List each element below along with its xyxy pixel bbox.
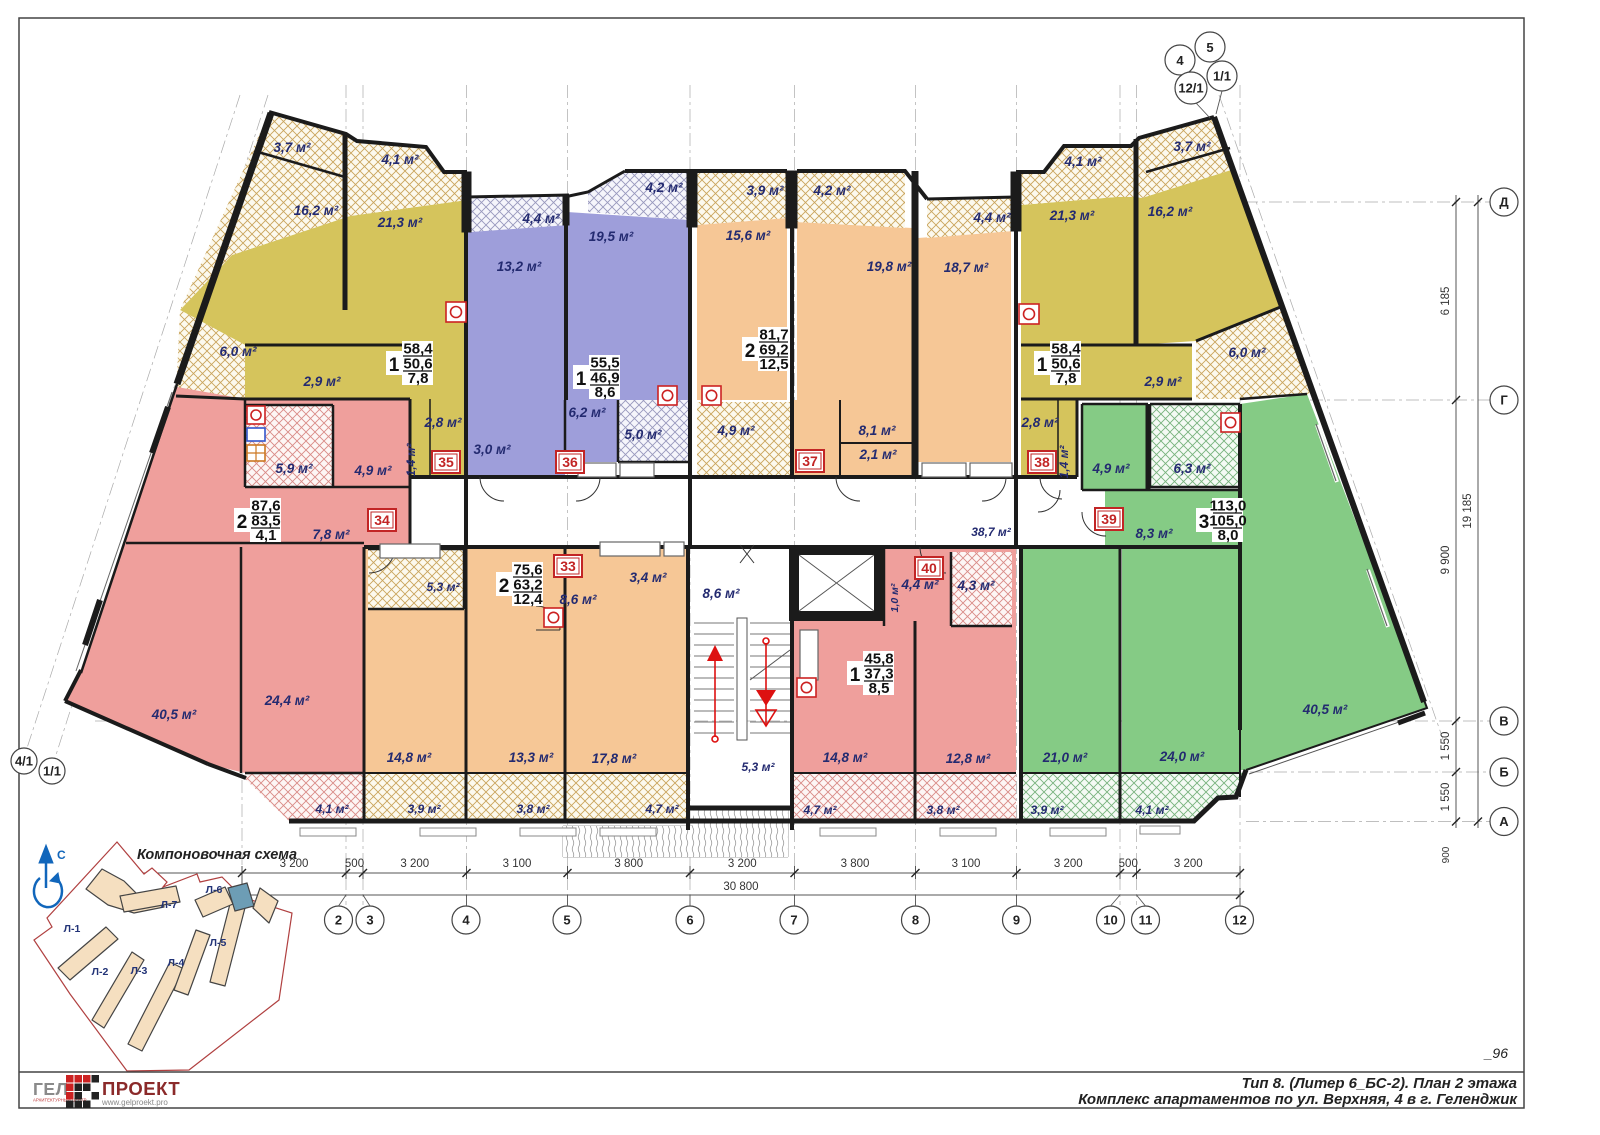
svg-text:9 900: 9 900 xyxy=(1440,546,1452,575)
svg-text:7,8: 7,8 xyxy=(408,370,429,387)
svg-text:13,3 м²: 13,3 м² xyxy=(509,750,554,765)
svg-text:17,8 м²: 17,8 м² xyxy=(592,751,637,766)
svg-text:16,2 м²: 16,2 м² xyxy=(1148,204,1193,219)
svg-text:38,7 м²: 38,7 м² xyxy=(971,525,1012,539)
svg-text:8,6: 8,6 xyxy=(595,384,616,401)
svg-text:А: А xyxy=(1499,814,1509,829)
svg-text:900: 900 xyxy=(1441,846,1452,863)
svg-text:3: 3 xyxy=(366,913,373,928)
svg-text:7,8 м²: 7,8 м² xyxy=(313,527,351,542)
svg-text:Д: Д xyxy=(1499,195,1509,210)
svg-text:2,9 м²: 2,9 м² xyxy=(303,374,342,389)
svg-text:Л-4: Л-4 xyxy=(168,957,185,969)
svg-text:6: 6 xyxy=(686,913,693,928)
svg-text:7,8: 7,8 xyxy=(1056,370,1077,387)
svg-text:2: 2 xyxy=(237,512,248,533)
svg-text:2,9 м²: 2,9 м² xyxy=(1144,374,1183,389)
svg-text:33: 33 xyxy=(560,558,576,574)
svg-text:12/1: 12/1 xyxy=(1178,81,1203,96)
svg-text:40: 40 xyxy=(921,560,937,576)
svg-text:3,7 м²: 3,7 м² xyxy=(274,140,312,155)
svg-text:30 800: 30 800 xyxy=(723,881,758,893)
svg-text:3: 3 xyxy=(1199,512,1210,533)
svg-text:3,4 м²: 3,4 м² xyxy=(630,570,668,585)
svg-text:8,0: 8,0 xyxy=(1218,527,1239,544)
svg-text:Л-3: Л-3 xyxy=(131,965,148,977)
svg-text:12: 12 xyxy=(1232,913,1246,928)
svg-text:www.gelproekt.pro: www.gelproekt.pro xyxy=(101,1098,168,1107)
svg-text:11: 11 xyxy=(1139,913,1153,928)
svg-text:С: С xyxy=(57,848,66,862)
svg-text:24,4 м²: 24,4 м² xyxy=(264,693,310,708)
svg-text:10: 10 xyxy=(1103,913,1117,928)
svg-text:Г: Г xyxy=(1500,393,1508,408)
svg-text:13,2 м²: 13,2 м² xyxy=(497,259,542,274)
svg-text:3,9 м²: 3,9 м² xyxy=(747,183,785,198)
svg-text:7: 7 xyxy=(790,913,797,928)
svg-text:37: 37 xyxy=(802,453,818,469)
svg-text:12,8 м²: 12,8 м² xyxy=(946,751,991,766)
svg-text:6,0 м²: 6,0 м² xyxy=(220,344,258,359)
svg-text:3 200: 3 200 xyxy=(400,858,429,870)
svg-text:19,8 м²: 19,8 м² xyxy=(867,259,912,274)
svg-text:Л-2: Л-2 xyxy=(92,966,109,978)
svg-text:3,9 м²: 3,9 м² xyxy=(1031,803,1065,817)
svg-text:_96: _96 xyxy=(1483,1045,1509,1061)
svg-text:21,3 м²: 21,3 м² xyxy=(377,215,423,230)
svg-text:5,0 м²: 5,0 м² xyxy=(625,427,663,442)
svg-text:21,3 м²: 21,3 м² xyxy=(1049,208,1095,223)
svg-text:1: 1 xyxy=(389,355,400,376)
svg-text:Л-7: Л-7 xyxy=(161,899,178,911)
svg-text:40,5 м²: 40,5 м² xyxy=(1302,702,1348,717)
svg-text:8: 8 xyxy=(912,913,919,928)
svg-text:4,9 м²: 4,9 м² xyxy=(354,463,393,478)
svg-text:8,1 м²: 8,1 м² xyxy=(859,423,897,438)
svg-text:8,6 м²: 8,6 м² xyxy=(703,586,741,601)
svg-text:4,7 м²: 4,7 м² xyxy=(645,802,680,816)
svg-text:1,0 м²: 1,0 м² xyxy=(889,583,901,612)
svg-text:Л-5: Л-5 xyxy=(210,937,227,949)
svg-text:1 550: 1 550 xyxy=(1440,732,1452,761)
svg-text:Л-6: Л-6 xyxy=(206,884,223,896)
svg-text:8,6 м²: 8,6 м² xyxy=(560,592,598,607)
svg-text:3 100: 3 100 xyxy=(503,858,532,870)
svg-text:3 200: 3 200 xyxy=(1174,858,1203,870)
svg-text:36: 36 xyxy=(562,454,578,470)
svg-text:5,9 м²: 5,9 м² xyxy=(276,461,314,476)
svg-text:8,3 м²: 8,3 м² xyxy=(1136,526,1174,541)
svg-text:4,1 м²: 4,1 м² xyxy=(1064,154,1103,169)
svg-text:4/1: 4/1 xyxy=(15,754,33,769)
svg-text:24,0 м²: 24,0 м² xyxy=(1159,749,1205,764)
svg-text:19,5 м²: 19,5 м² xyxy=(589,229,634,244)
svg-text:3 800: 3 800 xyxy=(841,858,870,870)
svg-text:2: 2 xyxy=(499,576,510,597)
svg-text:4,1 м²: 4,1 м² xyxy=(1135,803,1170,817)
svg-text:12,5: 12,5 xyxy=(759,356,788,373)
svg-text:35: 35 xyxy=(438,454,454,470)
svg-text:2,8 м²: 2,8 м² xyxy=(424,415,463,430)
svg-text:В: В xyxy=(1499,714,1508,729)
svg-text:16,2 м²: 16,2 м² xyxy=(294,203,339,218)
svg-text:Б: Б xyxy=(1499,765,1508,780)
svg-text:1,4 м²: 1,4 м² xyxy=(1057,445,1071,479)
svg-text:8,5: 8,5 xyxy=(869,680,890,697)
svg-text:ПРОЕКТ: ПРОЕКТ xyxy=(102,1078,180,1099)
svg-text:3,8 м²: 3,8 м² xyxy=(927,803,961,817)
svg-text:3,0 м²: 3,0 м² xyxy=(474,442,512,457)
svg-text:3,8 м²: 3,8 м² xyxy=(517,802,551,816)
svg-text:1/1: 1/1 xyxy=(43,764,61,779)
svg-text:3 100: 3 100 xyxy=(952,858,981,870)
svg-text:2,8 м²: 2,8 м² xyxy=(1021,415,1060,430)
svg-text:4,1 м²: 4,1 м² xyxy=(315,802,350,816)
svg-text:Компоновочная схема: Компоновочная схема xyxy=(137,847,297,863)
svg-text:40,5 м²: 40,5 м² xyxy=(151,707,197,722)
svg-text:4,1: 4,1 xyxy=(256,527,277,544)
svg-text:4,2 м²: 4,2 м² xyxy=(813,183,852,198)
svg-text:38: 38 xyxy=(1034,454,1050,470)
svg-text:3,7 м²: 3,7 м² xyxy=(1174,139,1212,154)
svg-text:2: 2 xyxy=(335,913,342,928)
svg-text:5: 5 xyxy=(563,913,570,928)
svg-text:4,2 м²: 4,2 м² xyxy=(645,180,684,195)
svg-text:Л-1: Л-1 xyxy=(64,923,81,935)
svg-text:Комплекс апартаментов по ул. В: Комплекс апартаментов по ул. Верхняя, 4 … xyxy=(1078,1091,1518,1108)
svg-text:1: 1 xyxy=(576,369,587,390)
svg-text:6 185: 6 185 xyxy=(1440,287,1452,316)
svg-text:4,9 м²: 4,9 м² xyxy=(717,423,756,438)
svg-text:1/1: 1/1 xyxy=(1213,69,1231,84)
svg-text:Тип 8. (Литер 6_БС-2). План 2: Тип 8. (Литер 6_БС-2). План 2 этажа xyxy=(1242,1075,1517,1092)
svg-text:21,0 м²: 21,0 м² xyxy=(1042,750,1088,765)
svg-text:18,7 м²: 18,7 м² xyxy=(944,260,989,275)
svg-text:14,8 м²: 14,8 м² xyxy=(387,750,432,765)
svg-text:5: 5 xyxy=(1206,40,1213,55)
svg-text:1,4 м²: 1,4 м² xyxy=(404,443,418,477)
svg-text:4,4 м²: 4,4 м² xyxy=(522,211,561,226)
svg-text:39: 39 xyxy=(1101,511,1117,527)
svg-text:12,4: 12,4 xyxy=(513,591,543,608)
svg-text:2,1 м²: 2,1 м² xyxy=(859,447,898,462)
svg-text:2: 2 xyxy=(745,341,756,362)
svg-text:1: 1 xyxy=(850,665,861,686)
svg-text:5,3 м²: 5,3 м² xyxy=(427,580,461,594)
svg-text:5,3 м²: 5,3 м² xyxy=(742,760,776,774)
svg-text:3 800: 3 800 xyxy=(614,858,643,870)
svg-text:4,7 м²: 4,7 м² xyxy=(803,803,838,817)
svg-text:4: 4 xyxy=(1176,53,1184,68)
svg-text:4,4 м²: 4,4 м² xyxy=(973,210,1012,225)
svg-text:1: 1 xyxy=(1037,355,1048,376)
svg-text:34: 34 xyxy=(374,512,390,528)
svg-text:1 550: 1 550 xyxy=(1440,783,1452,812)
svg-text:4: 4 xyxy=(462,913,470,928)
svg-text:15,6 м²: 15,6 м² xyxy=(726,228,771,243)
svg-text:3 200: 3 200 xyxy=(1054,858,1083,870)
svg-text:19 185: 19 185 xyxy=(1462,493,1474,528)
svg-text:500: 500 xyxy=(1119,858,1138,870)
svg-text:4,9 м²: 4,9 м² xyxy=(1092,461,1131,476)
svg-text:500: 500 xyxy=(345,858,364,870)
svg-text:9: 9 xyxy=(1013,913,1020,928)
svg-text:4,1 м²: 4,1 м² xyxy=(381,152,420,167)
svg-text:6,2 м²: 6,2 м² xyxy=(569,405,607,420)
svg-text:6,0 м²: 6,0 м² xyxy=(1229,345,1267,360)
svg-text:3,9 м²: 3,9 м² xyxy=(408,802,442,816)
svg-text:ГЕЛ: ГЕЛ xyxy=(33,1079,68,1099)
svg-text:6,3 м²: 6,3 м² xyxy=(1174,461,1212,476)
svg-text:4,3 м²: 4,3 м² xyxy=(957,578,996,593)
svg-text:14,8 м²: 14,8 м² xyxy=(823,750,868,765)
svg-text:3 200: 3 200 xyxy=(728,858,757,870)
